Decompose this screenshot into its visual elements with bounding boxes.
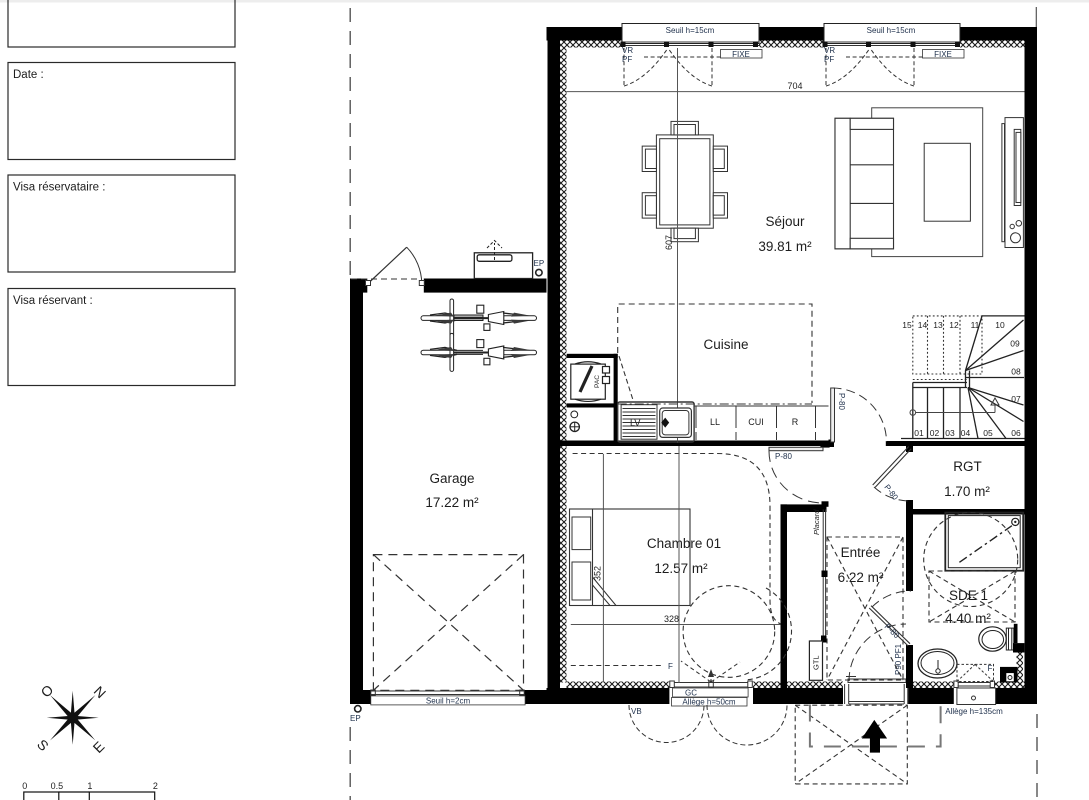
svg-text:GTL: GTL	[812, 655, 821, 670]
svg-text:Date :: Date :	[13, 69, 44, 81]
svg-text:07: 07	[1011, 394, 1021, 404]
svg-text:VR: VR	[622, 46, 633, 55]
svg-text:12.57 m²: 12.57 m²	[654, 561, 708, 576]
svg-text:Garage: Garage	[429, 471, 474, 486]
svg-text:VR: VR	[824, 46, 835, 55]
svg-text:Séjour: Séjour	[765, 214, 805, 229]
svg-text:Visa réservataire :: Visa réservataire :	[13, 182, 105, 194]
svg-text:F: F	[668, 662, 673, 671]
svg-text:1.70 m²: 1.70 m²	[944, 484, 990, 499]
svg-text:LV: LV	[630, 418, 640, 428]
svg-text:P90 PF1: P90 PF1	[894, 643, 903, 675]
svg-text:Seuil h=15cm: Seuil h=15cm	[867, 26, 916, 35]
svg-text:704: 704	[787, 81, 802, 91]
svg-text:03: 03	[945, 428, 955, 438]
svg-text:607: 607	[664, 235, 674, 250]
svg-text:352: 352	[593, 566, 603, 581]
svg-text:PF: PF	[824, 55, 834, 64]
svg-text:Cuisine: Cuisine	[703, 337, 748, 352]
svg-text:0: 0	[22, 781, 27, 791]
svg-text:RGT: RGT	[953, 459, 982, 474]
svg-text:01: 01	[914, 428, 924, 438]
svg-text:Placard: Placard	[812, 509, 821, 535]
svg-text:Seuil h=2cm: Seuil h=2cm	[426, 696, 471, 705]
svg-text:PF: PF	[622, 55, 632, 64]
svg-text:Allège h=50cm: Allège h=50cm	[682, 698, 735, 707]
svg-text:P-80: P-80	[837, 393, 846, 410]
svg-text:10: 10	[995, 320, 1005, 330]
svg-text:CUI: CUI	[748, 417, 764, 427]
svg-text:PAC: PAC	[594, 375, 601, 388]
svg-text:14: 14	[918, 320, 928, 330]
svg-text:328: 328	[664, 614, 679, 624]
svg-text:P-80: P-80	[775, 452, 792, 461]
svg-text:17.22 m²: 17.22 m²	[425, 495, 479, 510]
svg-text:R: R	[792, 417, 799, 427]
svg-text:4.40 m²: 4.40 m²	[945, 611, 991, 626]
svg-text:EP: EP	[350, 714, 361, 723]
svg-text:12: 12	[949, 320, 959, 330]
svg-text:FIXE: FIXE	[934, 50, 952, 59]
svg-text:Seuil h=15cm: Seuil h=15cm	[666, 26, 715, 35]
svg-text:Visa réservant :: Visa réservant :	[13, 295, 93, 307]
svg-text:09: 09	[1010, 339, 1020, 349]
svg-text:13: 13	[933, 320, 943, 330]
svg-text:VB: VB	[631, 707, 642, 716]
svg-text:04: 04	[961, 428, 971, 438]
svg-text:0.5: 0.5	[51, 781, 64, 791]
svg-text:02: 02	[930, 428, 940, 438]
svg-text:F: F	[988, 664, 993, 673]
svg-text:LL: LL	[710, 417, 720, 427]
svg-text:Chambre 01: Chambre 01	[647, 536, 721, 551]
svg-text:6.22 m²: 6.22 m²	[838, 570, 884, 585]
svg-text:1: 1	[87, 781, 92, 791]
svg-text:Allège h=135cm: Allège h=135cm	[945, 707, 1003, 716]
svg-text:05: 05	[983, 428, 993, 438]
svg-text:39.81 m²: 39.81 m²	[758, 239, 812, 254]
svg-text:Entrée: Entrée	[841, 545, 881, 560]
svg-text:SDE 1: SDE 1	[949, 588, 988, 603]
svg-text:FIXE: FIXE	[732, 50, 750, 59]
svg-text:EP: EP	[534, 259, 545, 268]
svg-text:GC: GC	[685, 689, 697, 698]
svg-text:11: 11	[971, 320, 980, 330]
svg-text:15: 15	[902, 320, 912, 330]
svg-text:08: 08	[1011, 367, 1021, 377]
svg-text:06: 06	[1011, 428, 1021, 438]
svg-text:2: 2	[153, 781, 158, 791]
